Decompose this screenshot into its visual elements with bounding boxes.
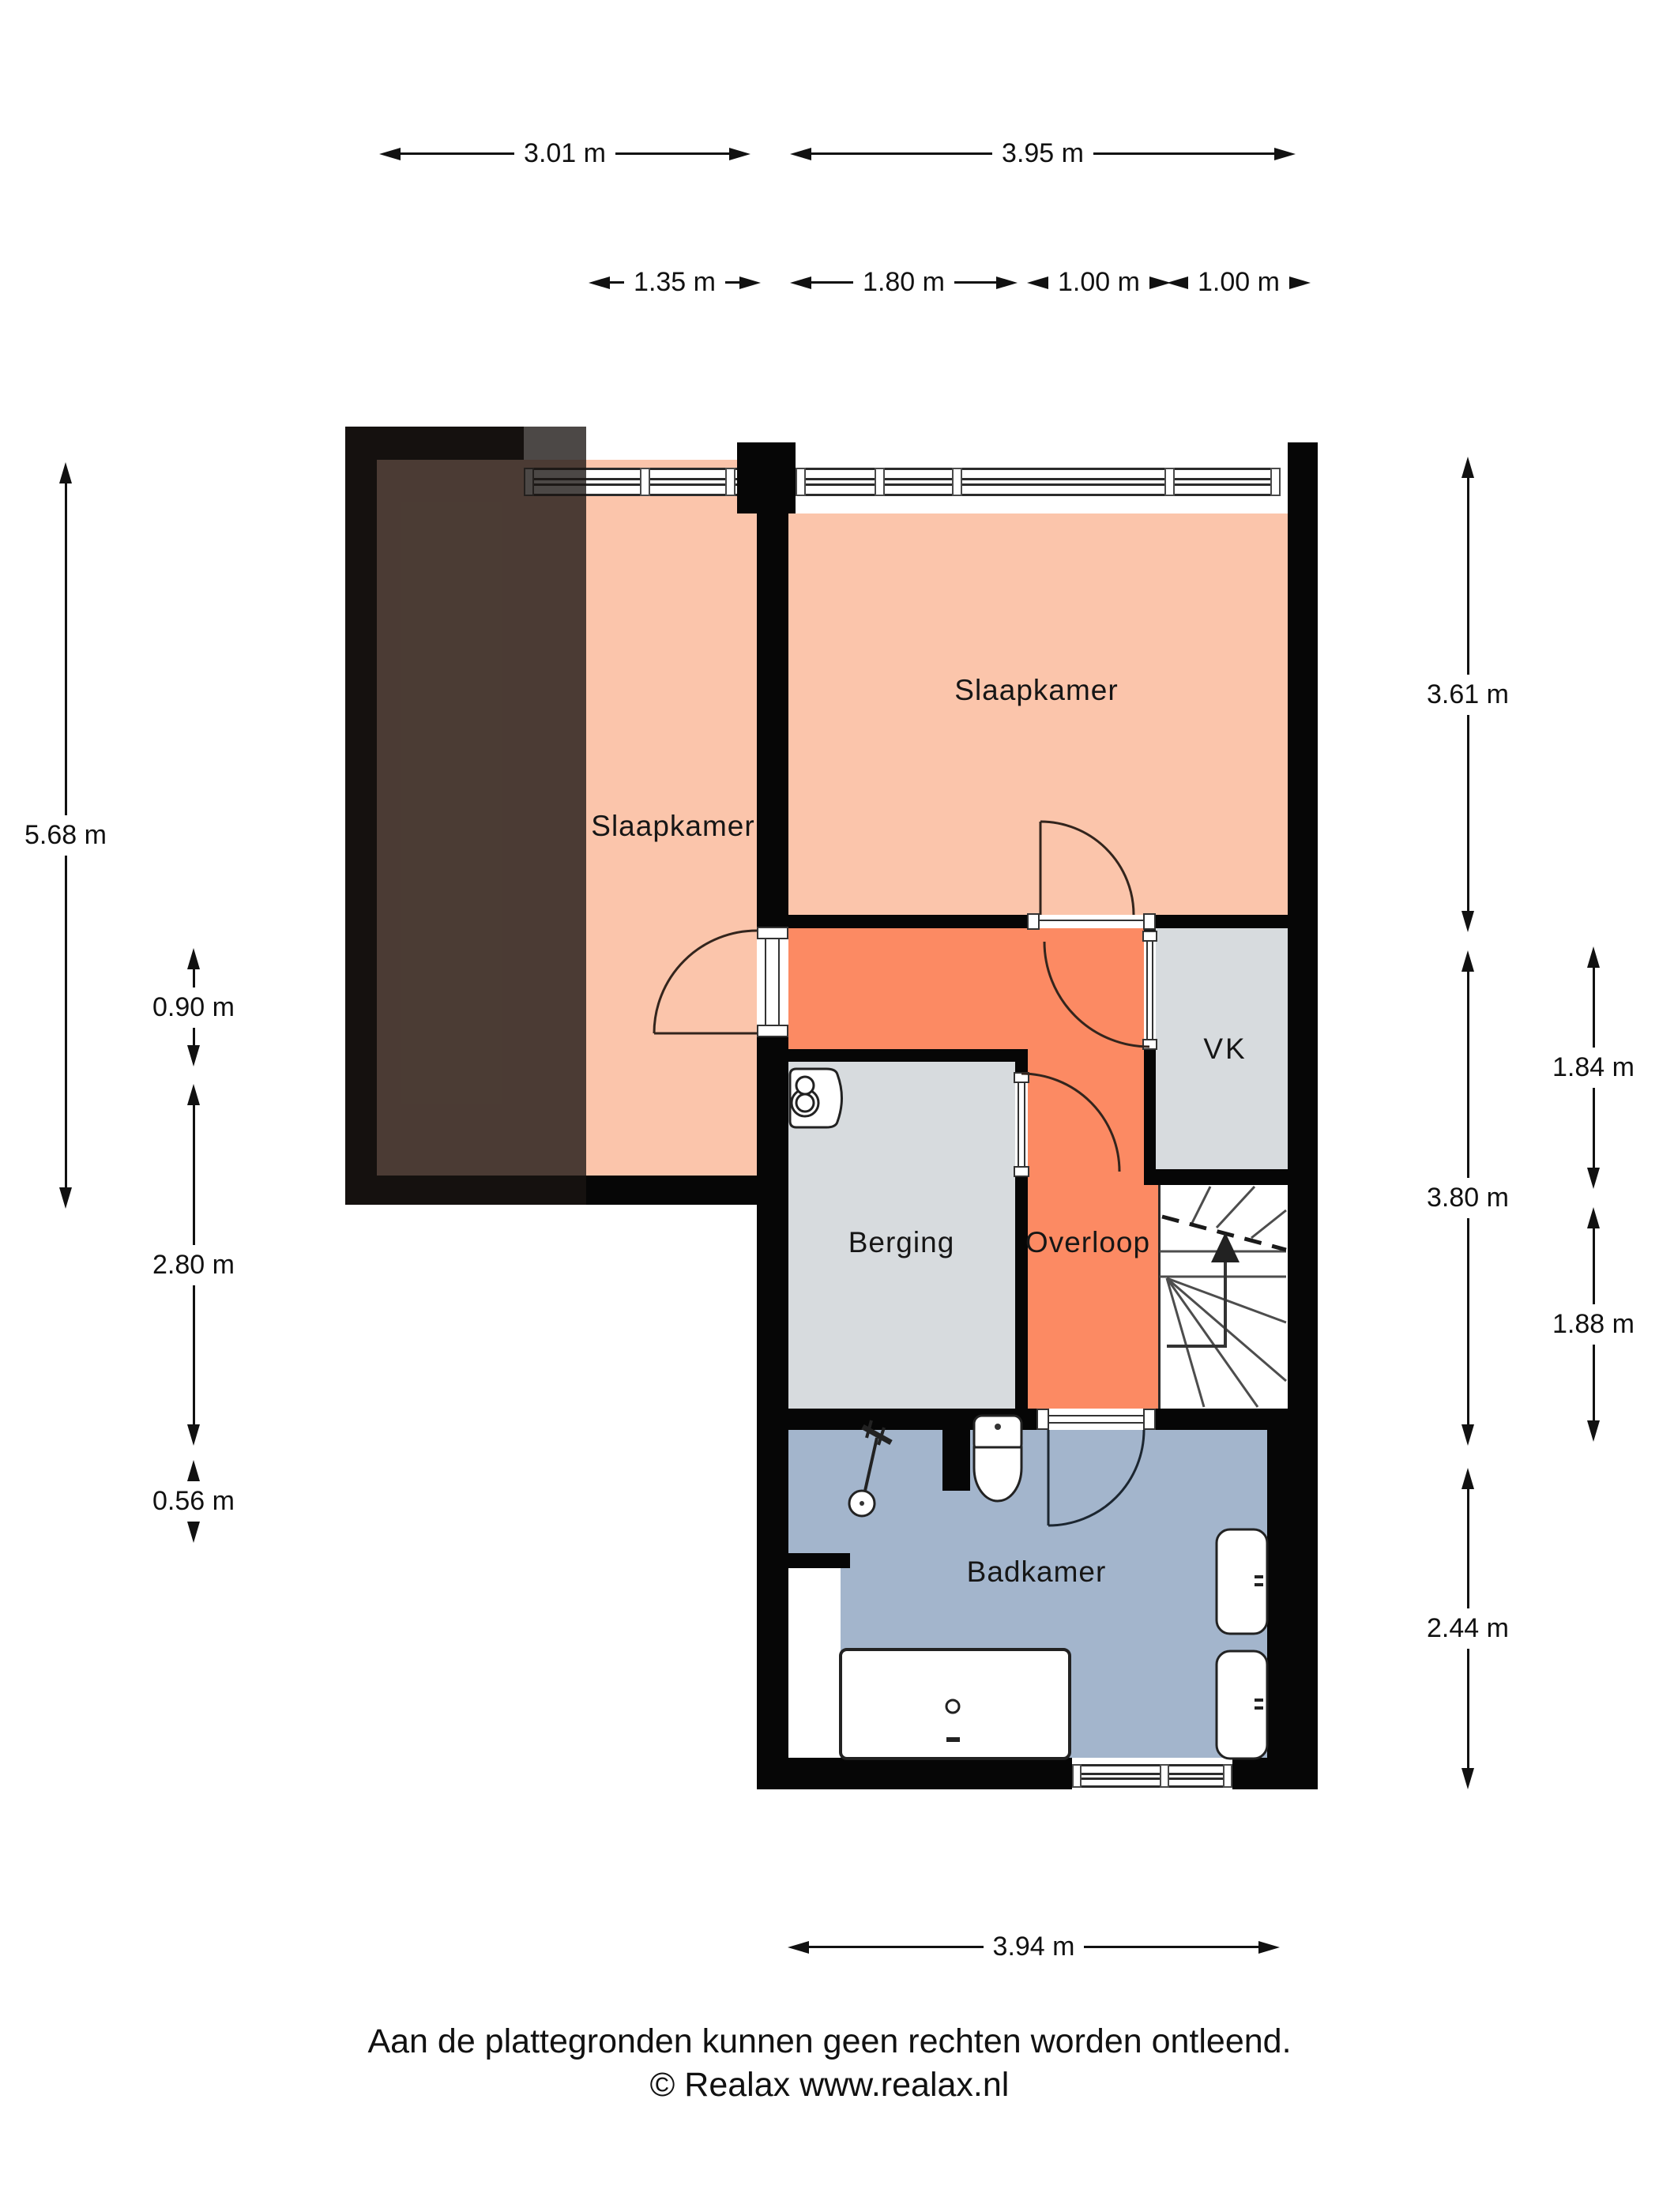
dim-door-height: 0.90 m — [146, 948, 241, 1066]
dim-niche-height: 0.56 m — [146, 1460, 241, 1533]
room-label-bed2: Slaapkamer — [954, 674, 1118, 707]
dim-berging-width: 1.80 m — [790, 267, 1018, 298]
room-label-bed1: Slaapkamer — [591, 810, 754, 843]
dim-vk-height: 1.84 m — [1546, 946, 1641, 1189]
dim-badkamer-width: 3.94 m — [788, 1932, 1280, 1962]
dim-vk-width: 1.00 m — [1167, 267, 1293, 298]
dim-mid-height: 3.80 m — [1420, 950, 1515, 1446]
dark-roof-overlay — [345, 427, 586, 1205]
shower-icon — [849, 1420, 891, 1516]
dim-bed1-width: 3.01 m — [379, 138, 750, 169]
door-arc-bed1 — [654, 931, 757, 1033]
furniture-layer — [0, 0, 1659, 2212]
dim-badkamer-height: 2.44 m — [1420, 1468, 1515, 1789]
bathtub-icon — [841, 1650, 1070, 1759]
dim-bed2-height: 3.61 m — [1420, 457, 1515, 932]
dim-bed1-height: 5.68 m — [18, 462, 113, 1209]
floorplan-page: Slaapkamer Slaapkamer VK Berging Overloo… — [0, 0, 1659, 2212]
room-label-overloop: Overloop — [1025, 1226, 1150, 1259]
washbasin-icon — [1217, 1651, 1267, 1759]
dim-doorzone-width: 1.35 m — [589, 267, 761, 298]
dim-overloop-width: 1.00 m — [1027, 267, 1156, 298]
door-arc-badkamer — [1048, 1430, 1144, 1525]
disclaimer-text: Aan de plattegronden kunnen geen rechten… — [0, 2022, 1659, 2061]
washbasin-icon — [1217, 1529, 1267, 1634]
room-label-berging: Berging — [848, 1226, 955, 1259]
door-arc-bed2 — [1040, 822, 1134, 915]
door-arc-vk — [1044, 942, 1149, 1047]
room-label-badkamer: Badkamer — [967, 1556, 1107, 1589]
stairs-icon — [1160, 1187, 1286, 1407]
dim-berging-height: 2.80 m — [146, 1084, 241, 1446]
dim-stairs-height: 1.88 m — [1546, 1207, 1641, 1442]
door-arc-berging — [1021, 1074, 1119, 1172]
boiler-icon — [790, 1069, 842, 1127]
toilet-icon — [974, 1416, 1021, 1501]
dim-bed2-width: 3.95 m — [790, 138, 1296, 169]
copyright-text: © Realax www.realax.nl — [0, 2066, 1659, 2105]
room-label-vk: VK — [1203, 1033, 1247, 1066]
